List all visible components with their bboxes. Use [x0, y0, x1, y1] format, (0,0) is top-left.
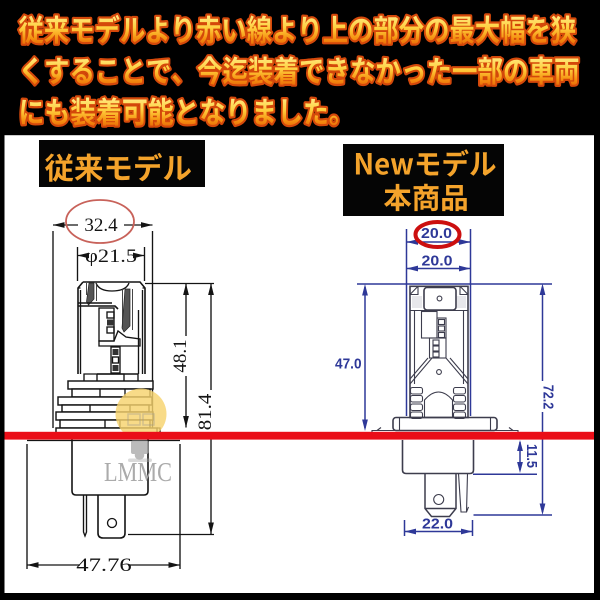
svg-text:47.0: 47.0 [335, 356, 362, 373]
svg-text:81.4: 81.4 [195, 393, 216, 430]
svg-text:LMMC: LMMC [104, 457, 172, 487]
svg-text:11.5: 11.5 [523, 444, 540, 468]
svg-text:22.0: 22.0 [422, 516, 453, 533]
svg-text:32.4: 32.4 [84, 215, 118, 236]
svg-text:47.76: 47.76 [76, 555, 132, 576]
svg-text:48.1: 48.1 [170, 339, 191, 372]
svg-text:20.0: 20.0 [422, 253, 453, 270]
svg-text:72.2: 72.2 [540, 385, 557, 410]
svg-text:φ21.5: φ21.5 [85, 246, 137, 267]
svg-text:20.0: 20.0 [421, 225, 452, 242]
